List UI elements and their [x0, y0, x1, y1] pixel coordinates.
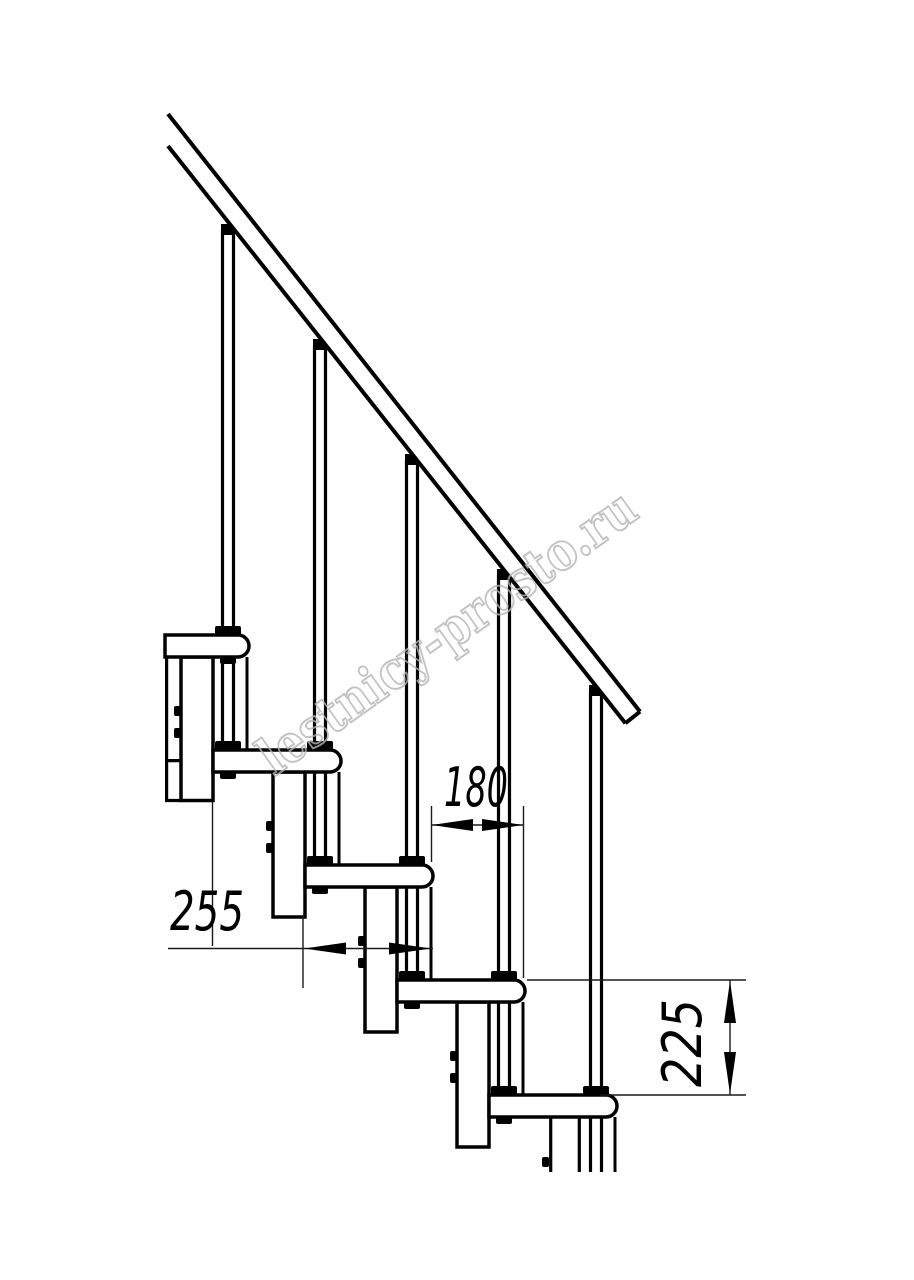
baluster-3	[399, 454, 425, 980]
tread-4	[397, 980, 525, 1002]
module-bolt-icon	[174, 706, 181, 716]
tread-5	[489, 1095, 617, 1117]
baluster-foot-cap	[583, 1086, 609, 1095]
module-bolt-icon	[450, 1051, 457, 1061]
module-4	[450, 1002, 489, 1147]
nut-icon	[220, 772, 236, 779]
baluster-foot-cap	[215, 626, 241, 635]
dimension-label-255: 255	[170, 880, 244, 943]
module-bolt-icon	[266, 821, 273, 831]
drawing-canvas: 180 255 225 lestnicy-prosto.ru	[0, 0, 914, 1280]
arrow-down-icon	[724, 1052, 736, 1094]
nut-icon	[496, 1117, 512, 1124]
module-box	[181, 657, 213, 801]
baluster-foot-cap	[307, 856, 333, 865]
module-bolt-icon	[450, 1073, 457, 1083]
module-box	[365, 887, 397, 1032]
dimension-label-180: 180	[444, 756, 508, 819]
module-bolt-icon	[266, 843, 273, 853]
module-box	[457, 1002, 489, 1147]
baluster-4	[491, 569, 517, 1095]
arrow-up-icon	[724, 981, 736, 1023]
module-3	[358, 887, 397, 1032]
balusters	[215, 224, 609, 1172]
module-5	[542, 1117, 579, 1172]
baluster-foot-cap	[399, 971, 425, 980]
module-2	[266, 772, 305, 917]
dimension-rise-225: 225	[527, 980, 746, 1095]
arrow-left-icon	[304, 943, 346, 955]
baluster-foot-cap	[491, 971, 517, 980]
baluster-1	[215, 224, 241, 750]
baluster-foot-cap	[399, 856, 425, 865]
baluster-2	[307, 339, 333, 865]
staircase-side-view-drawing: 180 255 225 lestnicy-prosto.ru	[0, 0, 914, 1280]
baluster-foot-cap	[491, 1086, 517, 1095]
nut-icon	[312, 887, 328, 894]
module-bolt-icon	[174, 728, 181, 738]
watermark-text: lestnicy-prosto.ru	[246, 477, 648, 787]
handrail-top-edge	[168, 114, 640, 712]
module-box	[273, 772, 305, 917]
module-1	[174, 657, 213, 801]
module-bolt-icon	[358, 936, 365, 946]
arrow-right-icon	[389, 943, 431, 955]
baluster-foot-cap	[215, 741, 241, 750]
module-bolt-icon	[542, 1157, 549, 1167]
tread-1	[165, 635, 249, 657]
dimension-label-225: 225	[651, 999, 714, 1087]
nut-icon	[404, 1002, 420, 1009]
module-bolt-icon	[358, 958, 365, 968]
tread-3	[305, 865, 433, 887]
arrow-left-icon	[432, 819, 474, 831]
arrow-right-icon	[482, 819, 524, 831]
